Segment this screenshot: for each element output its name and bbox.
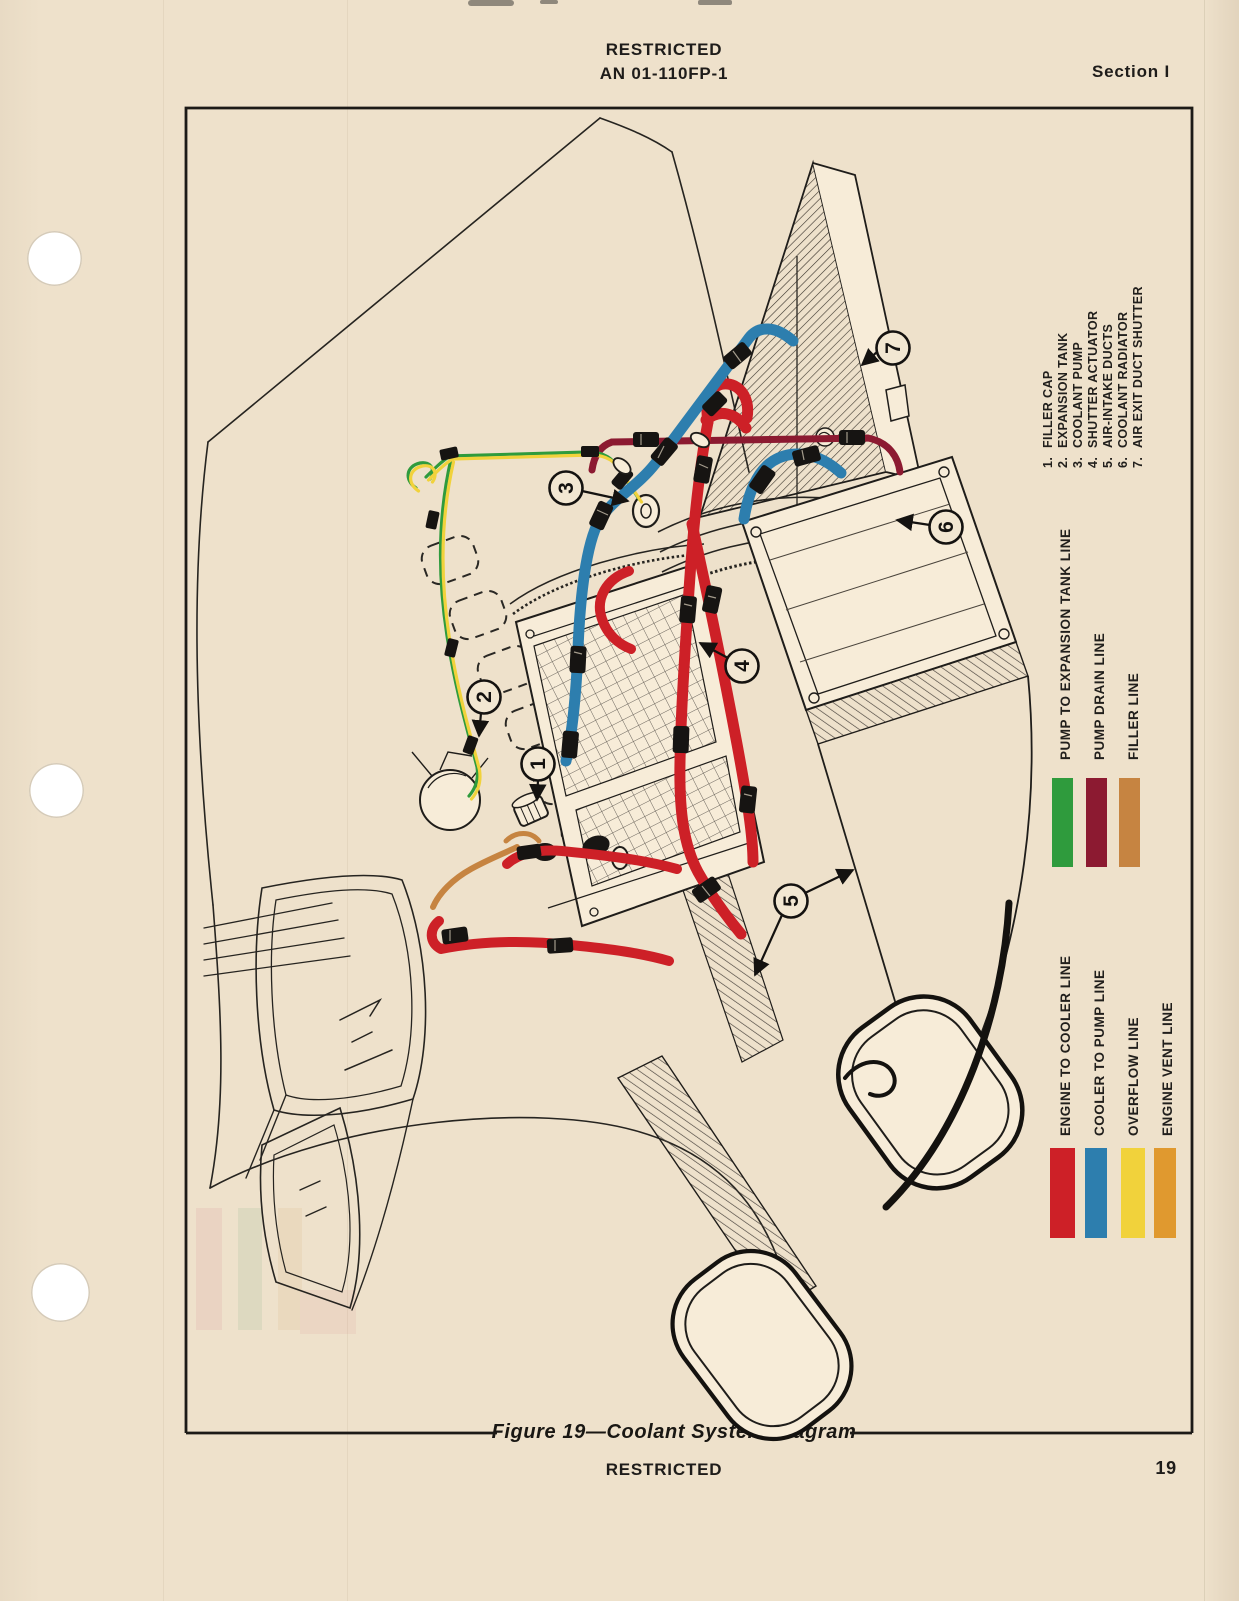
legend-swatch-brown (1119, 778, 1140, 867)
legend-label: PUMP TO EXPANSION TANK LINE (1048, 528, 1082, 760)
legend-swatch-green (1052, 778, 1073, 867)
legend-swatch-blue (1085, 1148, 1107, 1238)
parts-list-item: 5.AIR-INTAKE DUCTS (1100, 286, 1115, 468)
air-intake-duct-lower (618, 1056, 874, 1461)
legend-swatch-red (1050, 1148, 1075, 1238)
parts-list-item: 4.SHUTTER ACTUATOR (1085, 286, 1100, 468)
callout-5: 5 (780, 895, 803, 907)
legend-lower-labels: ENGINE TO COOLER LINE COOLER TO PUMP LIN… (1048, 955, 1184, 1136)
scan-specks (468, 0, 732, 6)
legend-swatch-maroon (1086, 778, 1107, 867)
manual-page: RESTRICTED AN 01-110FP-1 Section I RESTR… (0, 0, 1239, 1601)
print-through-ghost (196, 1208, 356, 1334)
parts-list-item: 3.COOLANT PUMP (1070, 286, 1085, 468)
legend-label: COOLER TO PUMP LINE (1082, 955, 1116, 1136)
coolant-radiator (742, 457, 1028, 744)
filler-line-brown (433, 834, 539, 908)
parts-list-item: 1.FILLER CAP (1040, 286, 1055, 468)
callout-2: 2 (473, 691, 496, 703)
callout-3: 3 (555, 482, 578, 494)
legend-label: FILLER LINE (1116, 528, 1150, 760)
parts-list-item: 6.COOLANT RADIATOR (1115, 286, 1130, 468)
callout-7: 7 (882, 342, 905, 354)
callout-6: 6 (935, 521, 958, 533)
parts-list-item: 7.AIR EXIT DUCT SHUTTER (1130, 286, 1145, 468)
filler-cap (510, 789, 549, 827)
callout-4: 4 (731, 660, 754, 672)
legend-label: ENGINE VENT LINE (1150, 955, 1184, 1136)
legend-swatch-yellow (1121, 1148, 1145, 1238)
legend-upper-labels: PUMP TO EXPANSION TANK LINE PUMP DRAIN L… (1048, 528, 1150, 760)
parts-list: 1.FILLER CAP 2.EXPANSION TANK 3.COOLANT … (1040, 286, 1145, 468)
parts-list-item: 2.EXPANSION TANK (1055, 286, 1070, 468)
legend-swatch-orange (1154, 1148, 1176, 1238)
legend-label: OVERFLOW LINE (1116, 955, 1150, 1136)
legend-label: ENGINE TO COOLER LINE (1048, 955, 1082, 1136)
engine-block (510, 544, 764, 926)
legend-label: PUMP DRAIN LINE (1082, 528, 1116, 760)
callout-1: 1 (527, 758, 550, 770)
